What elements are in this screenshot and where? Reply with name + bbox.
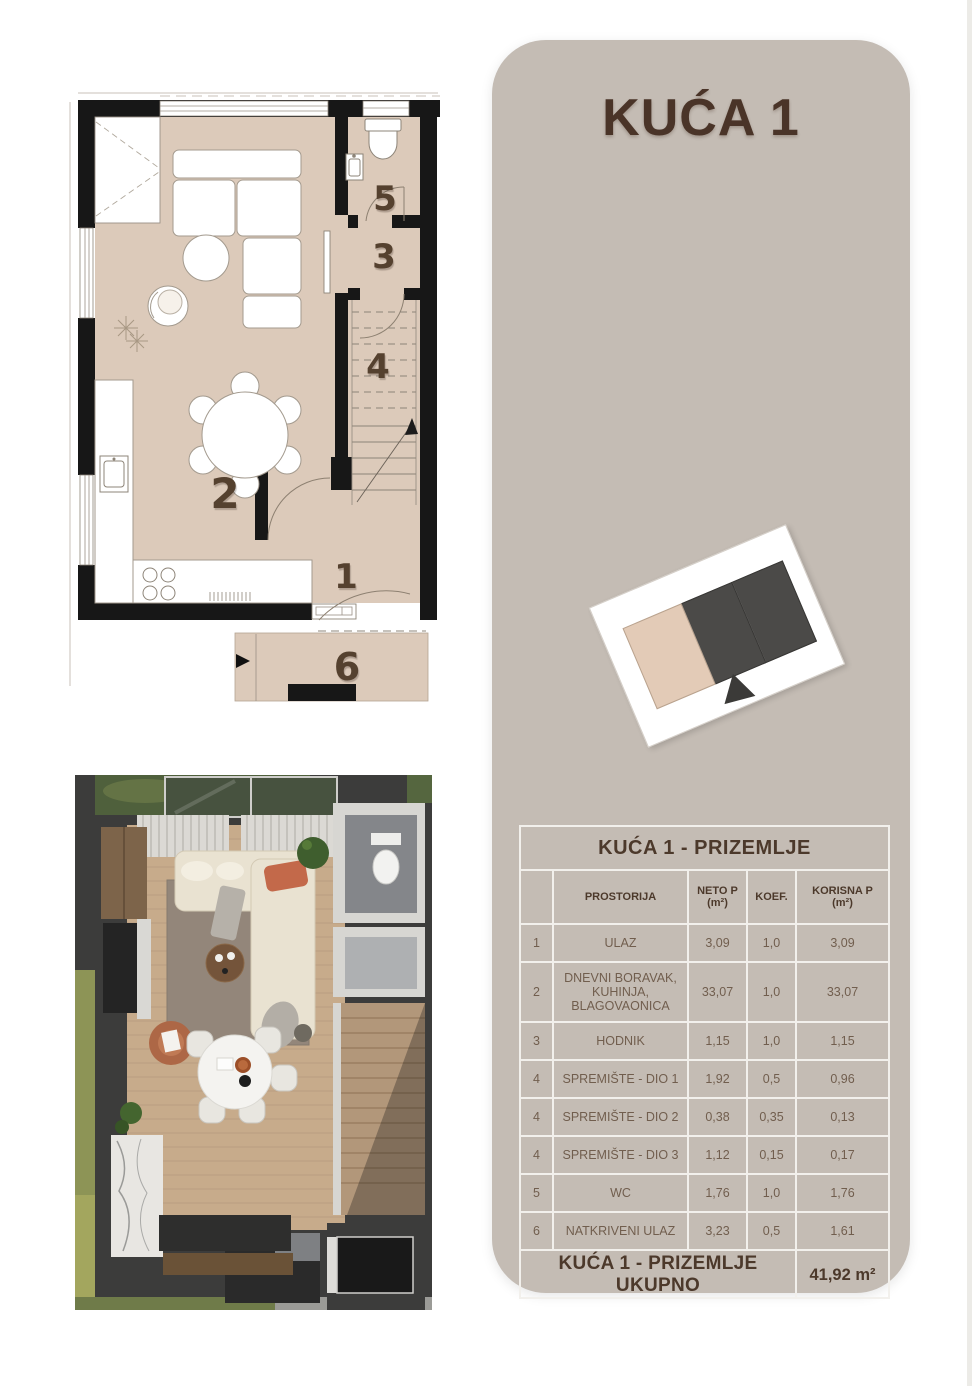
stairs-render (333, 1003, 425, 1215)
cell-koef: 1,0 (748, 925, 797, 961)
cell-room: HODNIK (554, 1023, 689, 1059)
table-row: 4 SPREMIŠTE - DIO 1 1,92 0,5 0,96 (521, 1061, 888, 1099)
cell-num: 3 (521, 1023, 554, 1059)
cell-koef: 0,35 (748, 1099, 797, 1135)
room-label-5: 5 (373, 179, 397, 219)
cell-room: NATKRIVENI ULAZ (554, 1213, 689, 1249)
col-room: PROSTORIJA (554, 871, 689, 923)
cell-neto: 1,92 (689, 1061, 748, 1097)
armchair (148, 286, 188, 326)
sliding-door (324, 231, 330, 293)
plant-render (297, 837, 329, 869)
room-label-1: 1 (334, 557, 358, 597)
cell-korisna: 1,61 (797, 1213, 888, 1249)
table-row: 4 SPREMIŠTE - DIO 3 1,12 0,15 0,17 (521, 1137, 888, 1175)
cell-num: 5 (521, 1175, 554, 1211)
col-num (521, 871, 554, 923)
bathroom (333, 803, 425, 923)
cell-korisna: 1,15 (797, 1023, 888, 1059)
page-title: KUĆA 1 (492, 40, 910, 148)
table-row: 1 ULAZ 3,09 1,0 3,09 (521, 925, 888, 963)
cell-korisna: 0,96 (797, 1061, 888, 1097)
cell-neto: 1,12 (689, 1137, 748, 1173)
area-table: KUĆA 1 - PRIZEMLJE PROSTORIJA NETO P (m²… (519, 825, 890, 1299)
cell-korisna: 1,76 (797, 1175, 888, 1211)
side-table (294, 1024, 312, 1042)
plant-leaf (302, 840, 312, 850)
coffee-table (183, 235, 229, 281)
cell-neto: 1,76 (689, 1175, 748, 1211)
col-koef: KOEF. (748, 871, 797, 923)
cell-num: 4 (521, 1137, 554, 1173)
table-title: KUĆA 1 - PRIZEMLJE (521, 827, 888, 871)
sink-icon (346, 154, 363, 180)
floor-plan-drawing: 5 3 4 2 1 6 (60, 88, 445, 723)
col-korisna: KORISNA P (m²) (797, 871, 888, 923)
room-label-4: 4 (366, 347, 390, 387)
table-row: 3 HODNIK 1,15 1,0 1,15 (521, 1023, 888, 1061)
table-row: 2 DNEVNI BORAVAK, KUHINJA, BLAGOVAONICA … (521, 963, 888, 1023)
table-footer-row: KUĆA 1 - PRIZEMLJE UKUPNO 41,92 m² (521, 1251, 888, 1297)
cell-neto: 1,15 (689, 1023, 748, 1059)
cell-korisna: 0,13 (797, 1099, 888, 1135)
cell-num: 4 (521, 1099, 554, 1135)
cell-num: 4 (521, 1061, 554, 1097)
cell-neto: 3,23 (689, 1213, 748, 1249)
table-total-label: KUĆA 1 - PRIZEMLJE UKUPNO (521, 1251, 797, 1299)
cell-room: SPREMIŠTE - DIO 3 (554, 1137, 689, 1173)
room-label-6: 6 (334, 645, 360, 689)
entry-mat (327, 1223, 425, 1310)
cell-num: 2 (521, 963, 554, 1021)
cell-num: 6 (521, 1213, 554, 1249)
cell-koef: 0,15 (748, 1137, 797, 1173)
armchair-render (149, 1021, 193, 1065)
table-header-row: PROSTORIJA NETO P (m²) KOEF. KORISNA P (… (521, 871, 888, 925)
cell-neto: 3,09 (689, 925, 748, 961)
glass-canopy (165, 777, 337, 817)
cell-neto: 0,38 (689, 1099, 748, 1135)
table-row: 4 SPREMIŠTE - DIO 2 0,38 0,35 0,13 (521, 1099, 888, 1137)
cell-koef: 0,5 (748, 1061, 797, 1097)
table-total-value: 41,92 m² (797, 1251, 888, 1299)
cell-korisna: 3,09 (797, 925, 888, 961)
cell-room: SPREMIŠTE - DIO 1 (554, 1061, 689, 1097)
cell-neto: 33,07 (689, 963, 748, 1021)
interior-render (75, 775, 432, 1310)
cell-num: 1 (521, 925, 554, 961)
room-label-2: 2 (210, 469, 239, 518)
cell-korisna: 33,07 (797, 963, 888, 1021)
table-row: 6 NATKRIVENI ULAZ 3,23 0,5 1,61 (521, 1213, 888, 1251)
cell-room: SPREMIŠTE - DIO 2 (554, 1099, 689, 1135)
cell-room: DNEVNI BORAVAK, KUHINJA, BLAGOVAONICA (554, 963, 689, 1021)
cell-koef: 0,5 (748, 1213, 797, 1249)
page-edge (967, 0, 972, 1386)
col-neto: NETO P (m²) (689, 871, 748, 923)
cell-room: ULAZ (554, 925, 689, 961)
cell-korisna: 0,17 (797, 1137, 888, 1173)
room-label-3: 3 (372, 237, 396, 277)
site-plan-icon (589, 524, 845, 748)
door-sill (312, 604, 356, 619)
table-row: 5 WC 1,76 1,0 1,76 (521, 1175, 888, 1213)
coffee-table-render (206, 944, 244, 982)
cell-room: WC (554, 1175, 689, 1211)
cell-koef: 1,0 (748, 1023, 797, 1059)
dining-table (202, 392, 288, 478)
cell-koef: 1,0 (748, 963, 797, 1021)
hallway (333, 927, 425, 997)
wardrobe (95, 117, 160, 223)
cell-koef: 1,0 (748, 1175, 797, 1211)
info-panel: KUĆA 1 KUĆA 1 - PRIZEMLJE PROSTORIJA NET… (492, 40, 910, 1293)
